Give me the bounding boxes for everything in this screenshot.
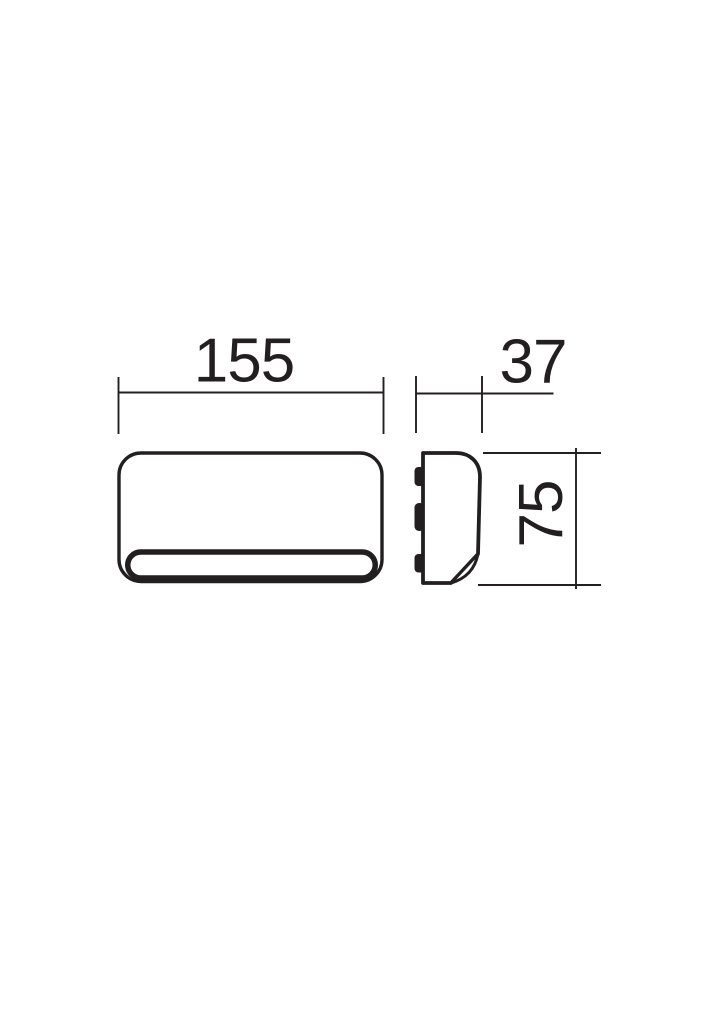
dimension-label-side-height: 75 [507, 481, 576, 548]
page: 155 37 75 [0, 0, 717, 1024]
dimension-side-depth: 37 [416, 328, 566, 434]
dimension-label-front-width: 155 [194, 327, 294, 396]
side-view [415, 453, 481, 583]
dimension-side-height: 75 [478, 448, 601, 589]
technical-drawing: 155 37 75 [0, 0, 717, 1024]
side-view-lens-edge [451, 554, 478, 583]
front-view-body-outline [119, 453, 382, 582]
front-view [119, 453, 382, 582]
dimension-label-side-depth: 37 [500, 328, 567, 397]
dimension-front-width: 155 [119, 327, 384, 435]
mounting-tab-bottom [415, 554, 425, 573]
mounting-tab-middle [415, 503, 425, 531]
front-view-light-slot [128, 552, 376, 578]
mounting-tab-top [415, 467, 425, 486]
